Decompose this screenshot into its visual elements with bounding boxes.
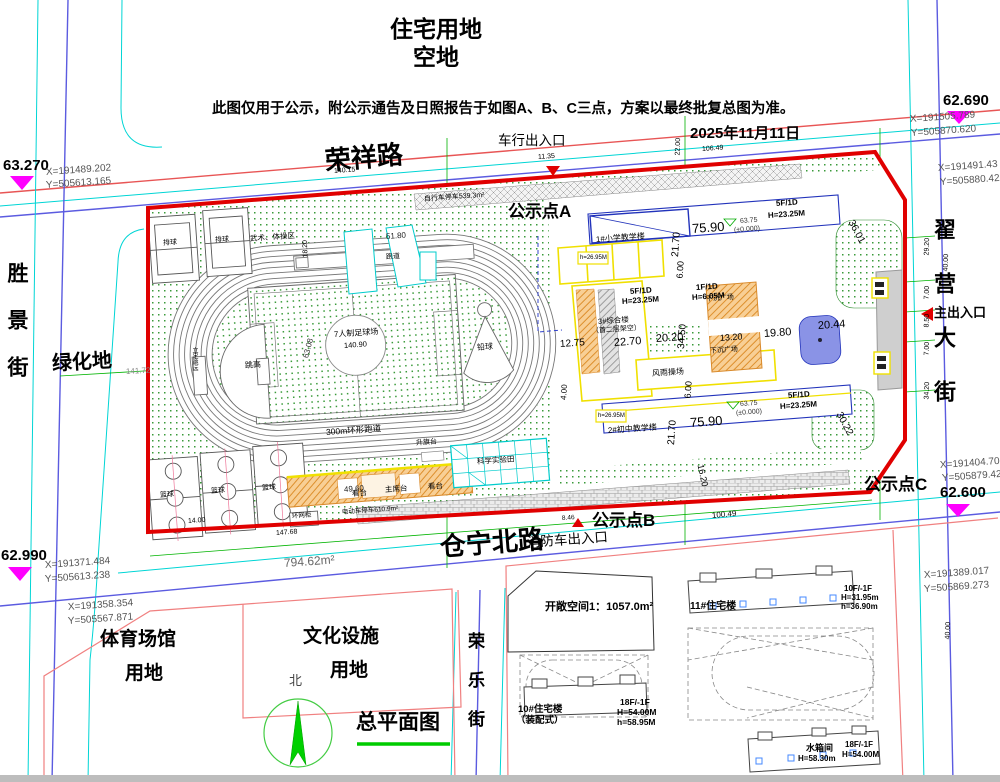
elevation-nw: 63.270 xyxy=(3,158,49,173)
dim-7-00-b: 7.00 xyxy=(924,342,931,356)
stand-label-right: 看台 xyxy=(428,482,443,491)
volleyball-label-2: 排球 xyxy=(215,236,229,244)
vehicle-entrance-label: 车行出入口 xyxy=(498,134,566,148)
elevation-ne: 62.690 xyxy=(943,93,989,108)
tank-building-floors: 18F/-1F xyxy=(845,741,873,749)
dim-147-68: 147.68 xyxy=(276,529,298,537)
dim-51-80: 51.80 xyxy=(386,232,407,241)
volleyball-label-1: 排球 xyxy=(163,239,177,247)
building-11-label: 11#住宅楼 xyxy=(690,602,736,612)
standing-jump-label: 立定跳远 xyxy=(191,347,197,371)
building-3-label-1: 3#综合楼 xyxy=(598,316,629,326)
dim-40-00-b: 40.00 xyxy=(945,622,953,640)
site-plan-drawing: 住宅用地 空地 此图仅用于公示，附公示通告及日照报告于如图A、B、C三点，方案以… xyxy=(0,0,1000,782)
land-use-label-line2: 空地 xyxy=(413,46,459,69)
dim-49-60: 49.60 xyxy=(344,485,365,494)
basketball-label-1: 篮球 xyxy=(160,491,174,499)
dim-19-80: 19.80 xyxy=(764,327,792,340)
dim-21-70-a: 21.70 xyxy=(671,232,683,258)
notice-point-b: 公示点B xyxy=(592,512,655,529)
notice-point-c: 公示点C xyxy=(864,476,927,493)
culture-parcel-label-1: 文化设施 xyxy=(303,627,379,646)
building-10-label-1: 10#住宅楼 xyxy=(518,705,562,715)
notice-date: 2025年11月11日 xyxy=(690,126,800,141)
basketball-label-3: 篮球 xyxy=(262,484,276,492)
dim-13-20: 13.20 xyxy=(720,332,743,343)
building-11-height: H=31.95m xyxy=(841,594,879,602)
north-arrow xyxy=(264,699,332,767)
dim-141-72: 141.72 xyxy=(126,367,151,376)
boundary-area-label: 794.62m² xyxy=(284,553,335,569)
dim-140-15: 140.15 xyxy=(334,167,356,175)
high-jump-label: 跳高 xyxy=(245,361,262,370)
notice-point-a: 公示点A xyxy=(508,203,571,220)
green-land-label: 绿化地 xyxy=(51,351,112,374)
dim-11-35: 11.35 xyxy=(538,153,555,161)
dim-7-00-a: 7.00 xyxy=(924,286,931,300)
main-entrance-label: 主出入口 xyxy=(934,306,986,319)
building-10-floors: 18F/-1F xyxy=(620,698,650,707)
dim-75-90-a: 75.90 xyxy=(692,220,725,235)
rostrum-label: 主席台 xyxy=(385,484,408,493)
dim-34-20: 34.20 xyxy=(924,382,932,400)
football-field-dim: 140.90 xyxy=(344,340,367,349)
water-tank-label: 水箱间 xyxy=(806,744,833,753)
dim-12-75: 12.75 xyxy=(560,338,586,350)
tank-building-height: H=54.00M xyxy=(842,751,879,759)
sports-parcel-label-1: 体育场馆 xyxy=(100,630,176,649)
level-b: 63.75 xyxy=(740,400,758,408)
road-shengjing: 胜景街 xyxy=(6,262,27,403)
dim-8-50: 8.50 xyxy=(924,314,931,328)
building-11-roof: h=36.90m xyxy=(841,603,878,611)
dim-34-50: 34.50 xyxy=(677,324,689,350)
dim-21-70-b: 21.70 xyxy=(667,420,679,446)
ring-cabinet-label: 环网柜 xyxy=(292,513,312,521)
building-11-floors: 10F/-1F xyxy=(844,585,872,593)
flag-platform xyxy=(421,451,444,462)
open-space-label: 开敞空间1：1057.0m² xyxy=(545,602,653,613)
building-1-floors: 5F/1D xyxy=(776,198,798,208)
plan-title: 总平面图 xyxy=(356,712,440,733)
roof-height-2: h=26.95M xyxy=(598,413,625,419)
dim-75-90-b: 75.90 xyxy=(690,414,723,429)
sports-parcel-label-2: 用地 xyxy=(125,664,163,683)
land-use-label-line1: 住宅用地 xyxy=(390,18,482,41)
runway-label: 跑道 xyxy=(386,253,400,261)
north-label: 北 xyxy=(289,674,302,687)
building-10-label-2: （装配式） xyxy=(516,716,564,726)
dim-8-46: 8.46 xyxy=(562,515,575,522)
dim-6-00-b: 6.00 xyxy=(684,381,694,399)
dim-29-20: 29.20 xyxy=(924,238,932,256)
basketball-label-2: 篮球 xyxy=(211,487,225,495)
dim-20-44: 20.44 xyxy=(818,319,846,332)
dim-6-00-a: 6.00 xyxy=(676,261,686,279)
football-field xyxy=(248,275,465,424)
dim-40-00-a: 40.00 xyxy=(943,254,951,272)
building-10-roof: h=58.95M xyxy=(617,718,656,727)
public-notice-text: 此图仅用于公示，附公示通告及日照报告于如图A、B、C三点，方案以最终批复总图为准… xyxy=(212,102,794,117)
road-rongle: 荣乐街 xyxy=(466,632,483,749)
dim-14-00: 14.00 xyxy=(188,517,206,525)
dim-22-70: 22.70 xyxy=(614,336,642,349)
flag-platform-label: 升旗台 xyxy=(416,439,437,447)
building-10-height: H=54.00M xyxy=(617,708,656,717)
dim-4-00: 4.00 xyxy=(560,384,569,400)
dim-18-20: 18.20 xyxy=(302,240,310,258)
water-tank-height: H=58.30m xyxy=(798,755,836,763)
dim-22-00: 22.00 xyxy=(675,138,683,156)
culture-parcel-label-2: 用地 xyxy=(330,661,368,680)
building-2-floors: 5F/1D xyxy=(788,390,810,400)
dim-106-49: 106.49 xyxy=(702,145,724,153)
shot-put-label: 铅球 xyxy=(477,343,494,352)
road-zhaiying: 翟营大街 xyxy=(932,218,954,434)
window-edge xyxy=(0,775,1000,782)
roof-height-1: h=26.95M xyxy=(580,255,607,261)
elevation-se: 62.600 xyxy=(940,485,986,500)
residential-parcel xyxy=(508,566,880,772)
elevation-sw: 62.990 xyxy=(1,548,47,563)
level-a: 63.75 xyxy=(740,217,758,225)
